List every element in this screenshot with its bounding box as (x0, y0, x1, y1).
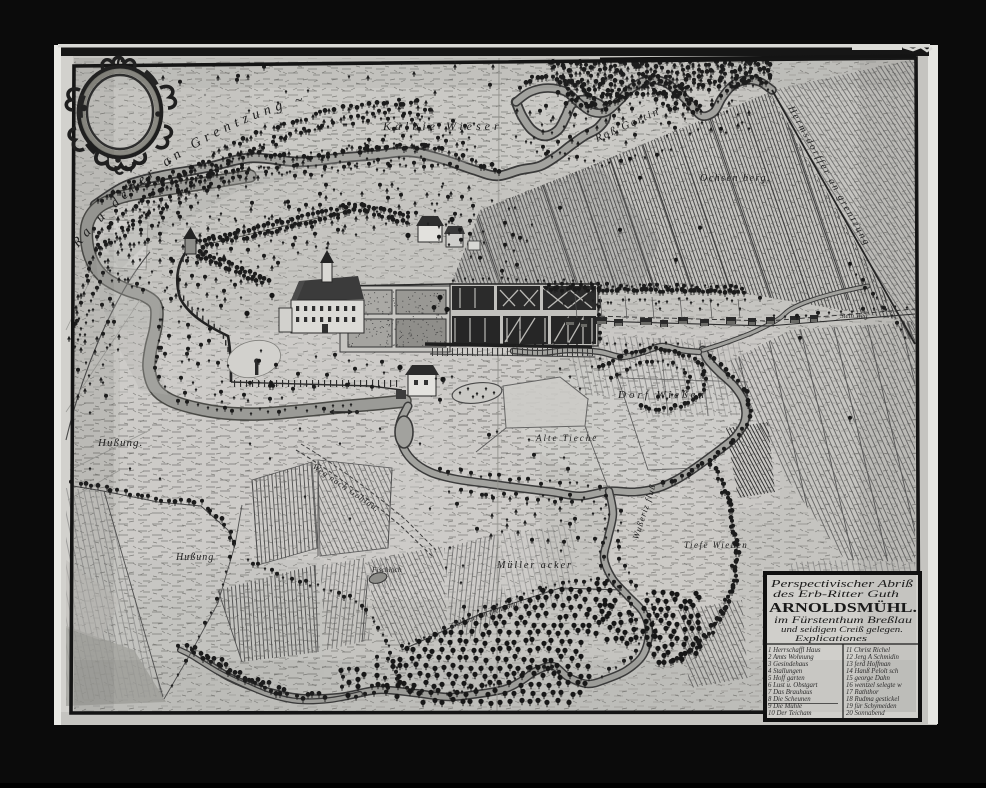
svg-text:Tiefe Wießen: Tiefe Wießen (684, 540, 748, 550)
svg-text:Ochsen berg.: Ochsen berg. (700, 173, 771, 184)
svg-text:Müller acker: Müller acker (496, 560, 573, 571)
svg-text:2 Amts Wohnung: 2 Amts Wohnung (768, 654, 814, 661)
svg-text:Explicationes: Explicationes (793, 633, 868, 643)
svg-text:Kälbie Wieser: Kälbie Wieser (382, 119, 503, 133)
svg-text:Fischloch: Fischloch (371, 565, 402, 574)
svg-text:Alte Tieche: Alte Tieche (535, 433, 598, 443)
svg-text:1 Herrschaffl Haus: 1 Herrschaffl Haus (768, 647, 821, 654)
svg-text:Hußung: Hußung (175, 552, 214, 563)
svg-text:Dorf Wießen: Dorf Wießen (617, 389, 707, 401)
